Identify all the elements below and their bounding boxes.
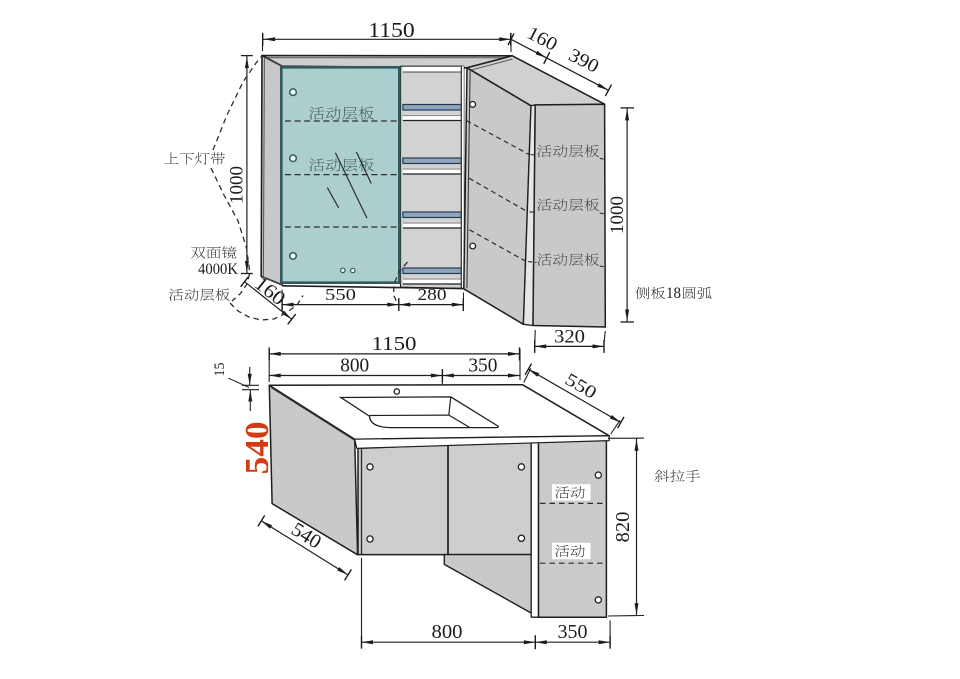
svg-text:280: 280 xyxy=(418,285,447,304)
svg-text:4000K: 4000K xyxy=(198,261,238,278)
svg-text:800: 800 xyxy=(340,355,369,377)
svg-text:800: 800 xyxy=(432,621,463,643)
svg-text:350: 350 xyxy=(468,355,497,377)
svg-text:540: 540 xyxy=(239,421,276,474)
svg-text:1000: 1000 xyxy=(227,166,248,204)
svg-text:15: 15 xyxy=(212,363,228,377)
svg-text:1150: 1150 xyxy=(368,18,415,42)
svg-text:1150: 1150 xyxy=(372,333,417,355)
svg-text:320: 320 xyxy=(554,327,585,348)
svg-text:1000: 1000 xyxy=(607,196,628,234)
svg-text:350: 350 xyxy=(558,621,588,643)
svg-text:550: 550 xyxy=(325,285,356,304)
svg-text:18: 18 xyxy=(666,285,681,302)
svg-text:820: 820 xyxy=(612,512,634,543)
